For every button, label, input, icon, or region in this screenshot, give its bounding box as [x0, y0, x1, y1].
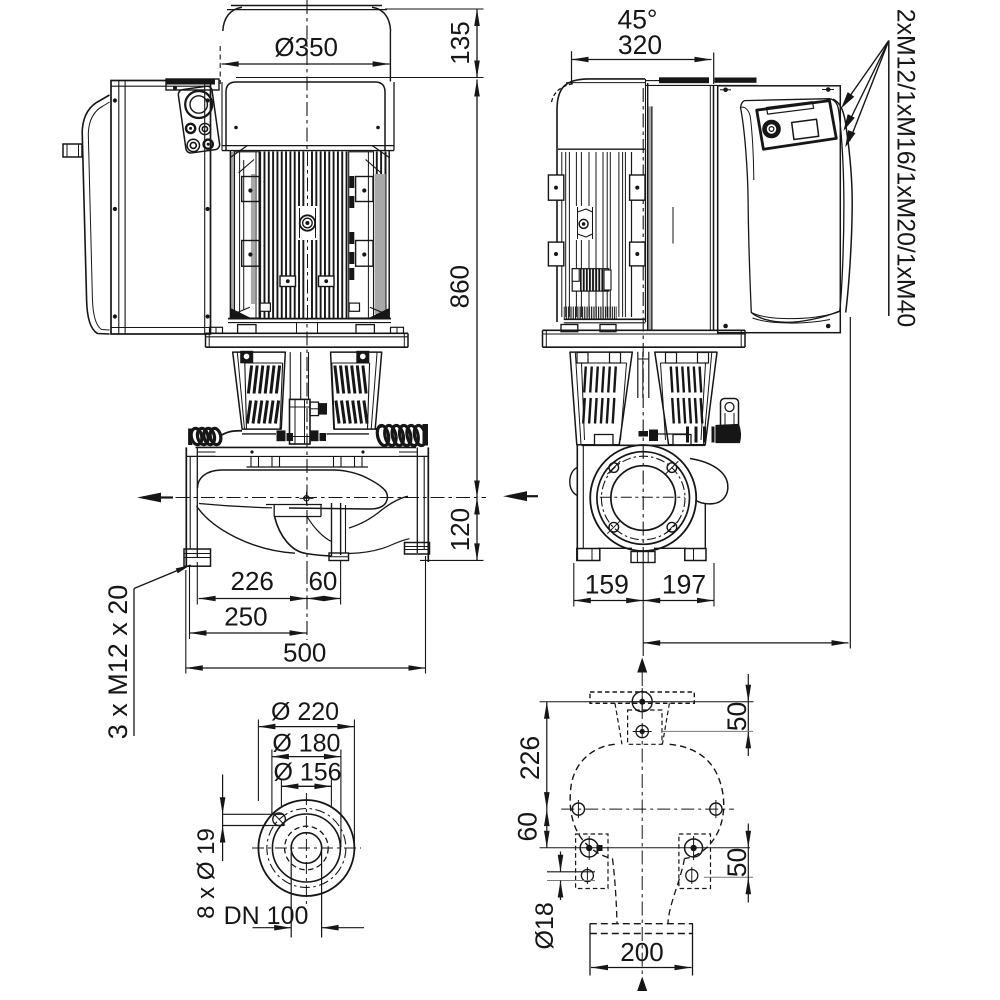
svg-text:197: 197 — [662, 570, 706, 600]
svg-text:Ø 180: Ø 180 — [272, 729, 340, 757]
svg-text:320: 320 — [618, 30, 662, 60]
svg-text:860: 860 — [445, 265, 475, 308]
svg-text:135: 135 — [445, 21, 475, 64]
svg-text:250: 250 — [224, 601, 267, 631]
svg-text:60: 60 — [308, 566, 337, 596]
svg-text:Ø 220: Ø 220 — [271, 698, 339, 726]
svg-text:Ø350: Ø350 — [274, 32, 338, 62]
svg-text:2xM12/1xM16/1xM20/1xM40: 2xM12/1xM16/1xM20/1xM40 — [892, 9, 919, 327]
svg-text:3 x M12 x 20: 3 x M12 x 20 — [103, 585, 133, 740]
svg-text:Ø18: Ø18 — [531, 902, 559, 949]
svg-text:50: 50 — [722, 848, 752, 877]
svg-text:8 x Ø 19: 8 x Ø 19 — [193, 828, 220, 919]
svg-text:226: 226 — [515, 736, 545, 780]
svg-text:50: 50 — [722, 702, 752, 731]
svg-text:500: 500 — [283, 637, 326, 667]
svg-text:200: 200 — [620, 937, 663, 967]
svg-text:226: 226 — [231, 566, 274, 596]
svg-text:120: 120 — [445, 508, 475, 551]
svg-text:DN 100: DN 100 — [224, 902, 309, 930]
svg-text:60: 60 — [513, 812, 543, 841]
svg-text:159: 159 — [585, 570, 629, 600]
